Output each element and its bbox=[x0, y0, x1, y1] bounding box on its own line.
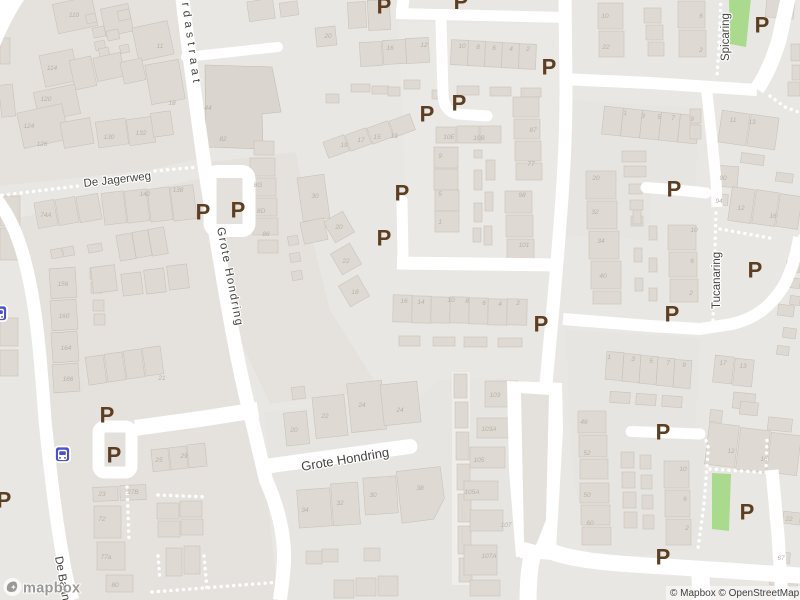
svg-text:20: 20 bbox=[591, 175, 600, 182]
svg-text:20: 20 bbox=[289, 427, 298, 434]
svg-text:22: 22 bbox=[784, 516, 793, 523]
svg-text:9: 9 bbox=[438, 153, 442, 160]
svg-text:30: 30 bbox=[369, 492, 377, 499]
svg-text:20: 20 bbox=[334, 224, 343, 231]
svg-text:156: 156 bbox=[58, 281, 69, 288]
svg-text:94: 94 bbox=[715, 198, 723, 205]
svg-text:P: P bbox=[231, 198, 246, 223]
svg-text:8: 8 bbox=[476, 44, 480, 51]
svg-text:P: P bbox=[665, 302, 680, 327]
svg-text:7: 7 bbox=[666, 360, 670, 367]
svg-text:18: 18 bbox=[351, 289, 359, 296]
svg-text:P: P bbox=[454, 0, 469, 14]
svg-text:3: 3 bbox=[641, 113, 645, 120]
svg-text:10: 10 bbox=[601, 13, 609, 20]
svg-text:P: P bbox=[534, 312, 549, 337]
svg-text:P: P bbox=[656, 545, 671, 570]
svg-text:24: 24 bbox=[395, 407, 404, 414]
svg-text:22: 22 bbox=[320, 413, 329, 420]
svg-text:30: 30 bbox=[311, 193, 319, 200]
svg-text:17: 17 bbox=[357, 137, 365, 144]
svg-text:50: 50 bbox=[583, 492, 591, 499]
svg-text:13: 13 bbox=[739, 363, 747, 370]
svg-text:12: 12 bbox=[727, 448, 735, 455]
svg-text:P: P bbox=[196, 200, 211, 225]
svg-text:12: 12 bbox=[420, 42, 428, 49]
svg-text:10B: 10B bbox=[473, 135, 485, 142]
svg-text:110: 110 bbox=[69, 12, 80, 19]
svg-text:P: P bbox=[740, 500, 755, 525]
svg-text:8: 8 bbox=[465, 298, 469, 305]
svg-text:34: 34 bbox=[597, 238, 605, 245]
svg-text:114: 114 bbox=[47, 65, 58, 72]
svg-text:19: 19 bbox=[340, 142, 348, 149]
svg-text:142: 142 bbox=[140, 191, 151, 198]
svg-text:5: 5 bbox=[649, 358, 653, 365]
svg-text:52: 52 bbox=[583, 450, 591, 457]
svg-text:11: 11 bbox=[730, 117, 737, 124]
svg-text:21: 21 bbox=[157, 375, 166, 382]
svg-text:164: 164 bbox=[61, 345, 72, 352]
svg-text:101: 101 bbox=[519, 242, 530, 249]
svg-text:1: 1 bbox=[623, 110, 627, 117]
svg-text:90: 90 bbox=[719, 175, 727, 182]
svg-text:86: 86 bbox=[262, 231, 270, 238]
svg-text:5: 5 bbox=[438, 191, 442, 198]
svg-text:1: 1 bbox=[607, 354, 611, 361]
svg-text:160: 160 bbox=[59, 313, 70, 320]
svg-text:8G: 8G bbox=[254, 182, 263, 189]
svg-text:67: 67 bbox=[777, 555, 785, 562]
svg-text:34: 34 bbox=[301, 507, 309, 514]
svg-text:P: P bbox=[0, 488, 11, 513]
svg-text:17: 17 bbox=[719, 360, 727, 367]
svg-text:166: 166 bbox=[63, 376, 74, 383]
svg-text:107: 107 bbox=[501, 522, 512, 529]
svg-text:P: P bbox=[377, 226, 392, 251]
svg-text:P: P bbox=[452, 91, 467, 116]
svg-text:24: 24 bbox=[357, 402, 366, 409]
svg-text:7: 7 bbox=[671, 115, 675, 122]
svg-text:Tucanaring: Tucanaring bbox=[711, 252, 723, 309]
svg-text:2: 2 bbox=[525, 46, 530, 53]
svg-text:2: 2 bbox=[515, 300, 520, 307]
svg-text:32: 32 bbox=[336, 500, 344, 507]
svg-text:23: 23 bbox=[97, 491, 106, 498]
svg-text:11: 11 bbox=[157, 43, 164, 50]
svg-text:6: 6 bbox=[690, 258, 694, 265]
svg-text:32: 32 bbox=[591, 209, 599, 216]
svg-text:98: 98 bbox=[518, 192, 526, 199]
svg-text:105A: 105A bbox=[464, 489, 479, 496]
svg-text:46: 46 bbox=[580, 419, 588, 426]
svg-text:9: 9 bbox=[690, 116, 694, 123]
svg-text:9: 9 bbox=[682, 362, 686, 369]
svg-text:3: 3 bbox=[631, 356, 635, 363]
svg-text:138: 138 bbox=[173, 187, 184, 194]
svg-text:77a: 77a bbox=[101, 554, 112, 561]
svg-text:82: 82 bbox=[219, 136, 227, 143]
svg-text:16: 16 bbox=[386, 45, 394, 52]
svg-text:P: P bbox=[395, 181, 410, 206]
svg-text:P: P bbox=[667, 177, 682, 202]
svg-text:P: P bbox=[377, 0, 392, 19]
svg-text:P: P bbox=[420, 102, 435, 127]
svg-text:mapbox: mapbox bbox=[23, 581, 80, 597]
svg-text:4: 4 bbox=[509, 46, 513, 53]
svg-text:44: 44 bbox=[204, 105, 212, 112]
svg-text:8D: 8D bbox=[257, 208, 266, 215]
svg-text:10: 10 bbox=[679, 466, 687, 473]
svg-text:18: 18 bbox=[168, 100, 176, 107]
svg-text:2: 2 bbox=[698, 47, 703, 54]
svg-text:© Mapbox © OpenStreetMap: © Mapbox © OpenStreetMap bbox=[670, 588, 800, 599]
svg-text:6: 6 bbox=[683, 496, 687, 503]
svg-text:15: 15 bbox=[373, 134, 381, 141]
svg-text:4: 4 bbox=[498, 301, 502, 308]
svg-text:2: 2 bbox=[684, 525, 689, 532]
svg-text:25: 25 bbox=[154, 457, 163, 464]
svg-text:10: 10 bbox=[690, 227, 698, 234]
svg-text:6: 6 bbox=[482, 300, 486, 307]
svg-text:13: 13 bbox=[390, 133, 398, 140]
svg-text:P: P bbox=[748, 258, 763, 283]
svg-text:38: 38 bbox=[416, 485, 424, 492]
svg-text:2: 2 bbox=[688, 290, 693, 297]
svg-text:6: 6 bbox=[492, 45, 496, 52]
svg-text:103A: 103A bbox=[481, 426, 496, 433]
svg-text:P: P bbox=[542, 55, 557, 80]
svg-text:74A: 74A bbox=[40, 212, 52, 219]
svg-text:16: 16 bbox=[400, 298, 408, 305]
svg-text:6: 6 bbox=[699, 13, 703, 20]
svg-text:105: 105 bbox=[474, 457, 485, 464]
svg-text:107A: 107A bbox=[481, 553, 496, 560]
svg-text:5: 5 bbox=[657, 114, 661, 121]
svg-text:16: 16 bbox=[760, 456, 768, 463]
svg-text:120: 120 bbox=[41, 96, 52, 103]
svg-text:22: 22 bbox=[341, 258, 350, 265]
svg-text:1: 1 bbox=[438, 219, 442, 226]
svg-text:20: 20 bbox=[323, 33, 332, 40]
svg-text:124: 124 bbox=[24, 123, 35, 130]
svg-text:P: P bbox=[656, 420, 671, 445]
svg-text:126: 126 bbox=[37, 141, 48, 148]
svg-text:77: 77 bbox=[527, 161, 535, 168]
svg-text:80: 80 bbox=[111, 582, 119, 589]
svg-text:87: 87 bbox=[529, 127, 537, 134]
svg-text:P: P bbox=[755, 13, 770, 38]
svg-text:12: 12 bbox=[737, 205, 745, 212]
svg-text:60: 60 bbox=[586, 520, 594, 527]
svg-text:16: 16 bbox=[769, 213, 777, 220]
svg-text:40: 40 bbox=[599, 273, 607, 280]
svg-text:130: 130 bbox=[104, 134, 115, 141]
svg-text:14: 14 bbox=[417, 299, 425, 306]
svg-text:29: 29 bbox=[179, 453, 188, 460]
svg-text:103: 103 bbox=[490, 392, 501, 399]
svg-text:P: P bbox=[100, 403, 115, 428]
svg-text:10: 10 bbox=[458, 43, 466, 50]
svg-text:13: 13 bbox=[748, 119, 756, 126]
svg-text:132: 132 bbox=[136, 130, 147, 137]
svg-text:P: P bbox=[107, 443, 122, 468]
svg-text:10E: 10E bbox=[443, 134, 455, 141]
svg-text:72: 72 bbox=[98, 516, 106, 523]
svg-text:27B: 27B bbox=[126, 489, 139, 496]
svg-text:Spicaring: Spicaring bbox=[720, 13, 732, 61]
svg-text:10: 10 bbox=[447, 297, 455, 304]
svg-text:22: 22 bbox=[601, 44, 610, 51]
